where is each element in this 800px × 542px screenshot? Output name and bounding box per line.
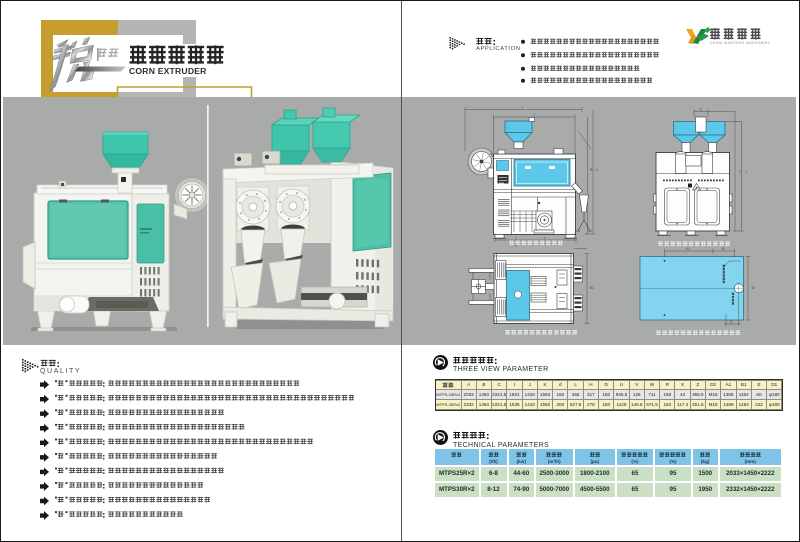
svg-text:B: B [722,247,725,251]
svg-text:B: B [590,168,593,172]
svg-text:A1: A1 [686,247,691,251]
svg-text:A: A [596,168,599,172]
svg-text:Y: Y [739,170,742,174]
svg-text:C: C [745,170,748,174]
svg-text:D: D [700,108,703,112]
svg-text:B1: B1 [590,286,595,290]
svg-text:W: W [752,286,756,290]
svg-text:I: I [522,106,523,110]
svg-text:L: L [544,236,546,240]
svg-text:J: J [533,113,535,117]
svg-text:E: E [730,320,733,324]
